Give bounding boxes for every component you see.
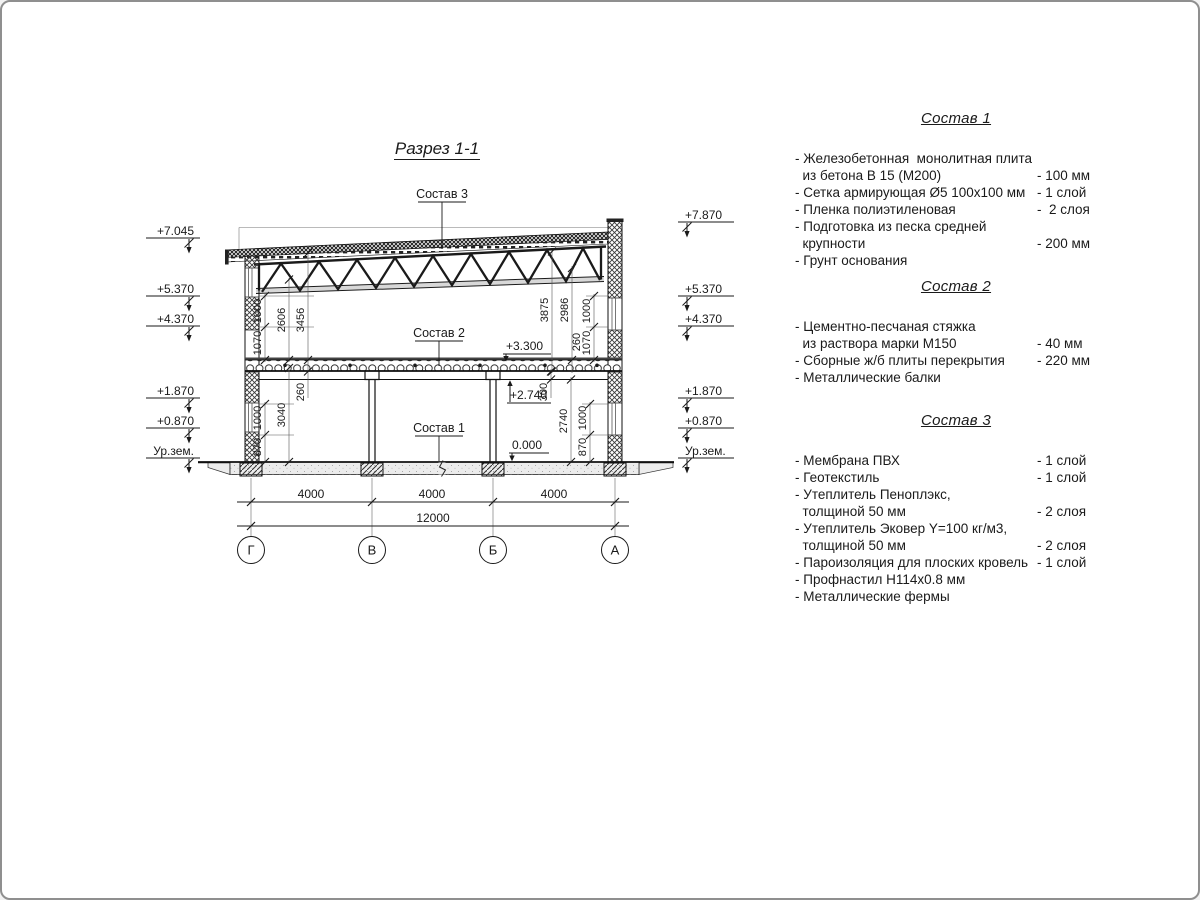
note-item: - Железобетонная монолитная плита из бет… xyxy=(795,150,1117,184)
note-item-name: - Утеплитель Пеноплэкс, толщиной 50 мм xyxy=(795,486,1037,520)
note-item-value: - 2 слоя xyxy=(1037,201,1090,218)
note-item: - Пароизоляция для плоских кровель - 1 с… xyxy=(795,554,1117,571)
note-item-name: - Цементно-песчаная стяжка из раствора м… xyxy=(795,318,1037,352)
note-item-value: - 1 слой xyxy=(1037,554,1086,571)
note-title: Состав 3 xyxy=(795,412,1117,429)
note-item: - Металлические балки xyxy=(795,369,1117,386)
note-block-sostav3: Состав 3 - Мембрана ПВХ - 1 слой - Геоте… xyxy=(795,412,1117,605)
note-item-value: - 200 мм xyxy=(1037,235,1090,252)
note-block-sostav2: Состав 2 - Цементно-песчаная стяжка из р… xyxy=(795,278,1117,386)
note-item-name: - Геотекстиль xyxy=(795,469,1037,486)
note-item-name: - Профнастил Н114х0.8 мм xyxy=(795,571,1037,588)
note-item-value: - 220 мм xyxy=(1037,352,1090,369)
note-item: - Профнастил Н114х0.8 мм xyxy=(795,571,1117,588)
note-item: - Цементно-песчаная стяжка из раствора м… xyxy=(795,318,1117,352)
note-title: Состав 2 xyxy=(795,278,1117,295)
note-item: - Сетка армирующая Ø5 100х100 мм - 1 сло… xyxy=(795,184,1117,201)
note-item-name: - Пленка полиэтиленовая xyxy=(795,201,1037,218)
note-item-value: - 1 слой xyxy=(1037,469,1086,486)
note-item-value: - 2 слоя xyxy=(1037,503,1086,520)
note-item-name: - Сетка армирующая Ø5 100х100 мм xyxy=(795,184,1037,201)
note-item: - Сборные ж/б плиты перекрытия - 220 мм xyxy=(795,352,1117,369)
note-item-name: - Пароизоляция для плоских кровель xyxy=(795,554,1037,571)
note-item-name: - Мембрана ПВХ xyxy=(795,452,1037,469)
note-item: - Мембрана ПВХ - 1 слой xyxy=(795,452,1117,469)
note-item-name: - Утеплитель Эковер Y=100 кг/м3, толщино… xyxy=(795,520,1037,554)
note-item: - Геотекстиль - 1 слой xyxy=(795,469,1117,486)
note-item: - Утеплитель Эковер Y=100 кг/м3, толщино… xyxy=(795,520,1117,554)
note-title: Состав 1 xyxy=(795,110,1117,127)
note-item-value: - 1 слой xyxy=(1037,184,1086,201)
note-item-name: - Железобетонная монолитная плита из бет… xyxy=(795,150,1037,184)
note-item: - Металлические фермы xyxy=(795,588,1117,605)
note-item: - Утеплитель Пеноплэкс, толщиной 50 мм -… xyxy=(795,486,1117,520)
note-block-sostav1: Состав 1 - Железобетонная монолитная пли… xyxy=(795,110,1117,269)
note-item-name: - Сборные ж/б плиты перекрытия xyxy=(795,352,1037,369)
note-item-value: - 100 мм xyxy=(1037,167,1090,184)
composition-notes: Состав 1 - Железобетонная монолитная пли… xyxy=(2,2,1200,900)
note-item-value: - 2 слоя xyxy=(1037,537,1086,554)
note-item-name: - Металлические фермы xyxy=(795,588,1037,605)
note-item: - Грунт основания xyxy=(795,252,1117,269)
note-item: - Подготовка из песка средней крупности … xyxy=(795,218,1117,252)
note-item-name: - Металлические балки xyxy=(795,369,1037,386)
note-item-name: - Подготовка из песка средней крупности xyxy=(795,218,1037,252)
note-item: - Пленка полиэтиленовая - 2 слоя xyxy=(795,201,1117,218)
blueprint-page: Разрез 1-1 xyxy=(0,0,1200,900)
note-item-value: - 40 мм xyxy=(1037,335,1083,352)
note-item-value: - 1 слой xyxy=(1037,452,1086,469)
note-item-name: - Грунт основания xyxy=(795,252,1037,269)
